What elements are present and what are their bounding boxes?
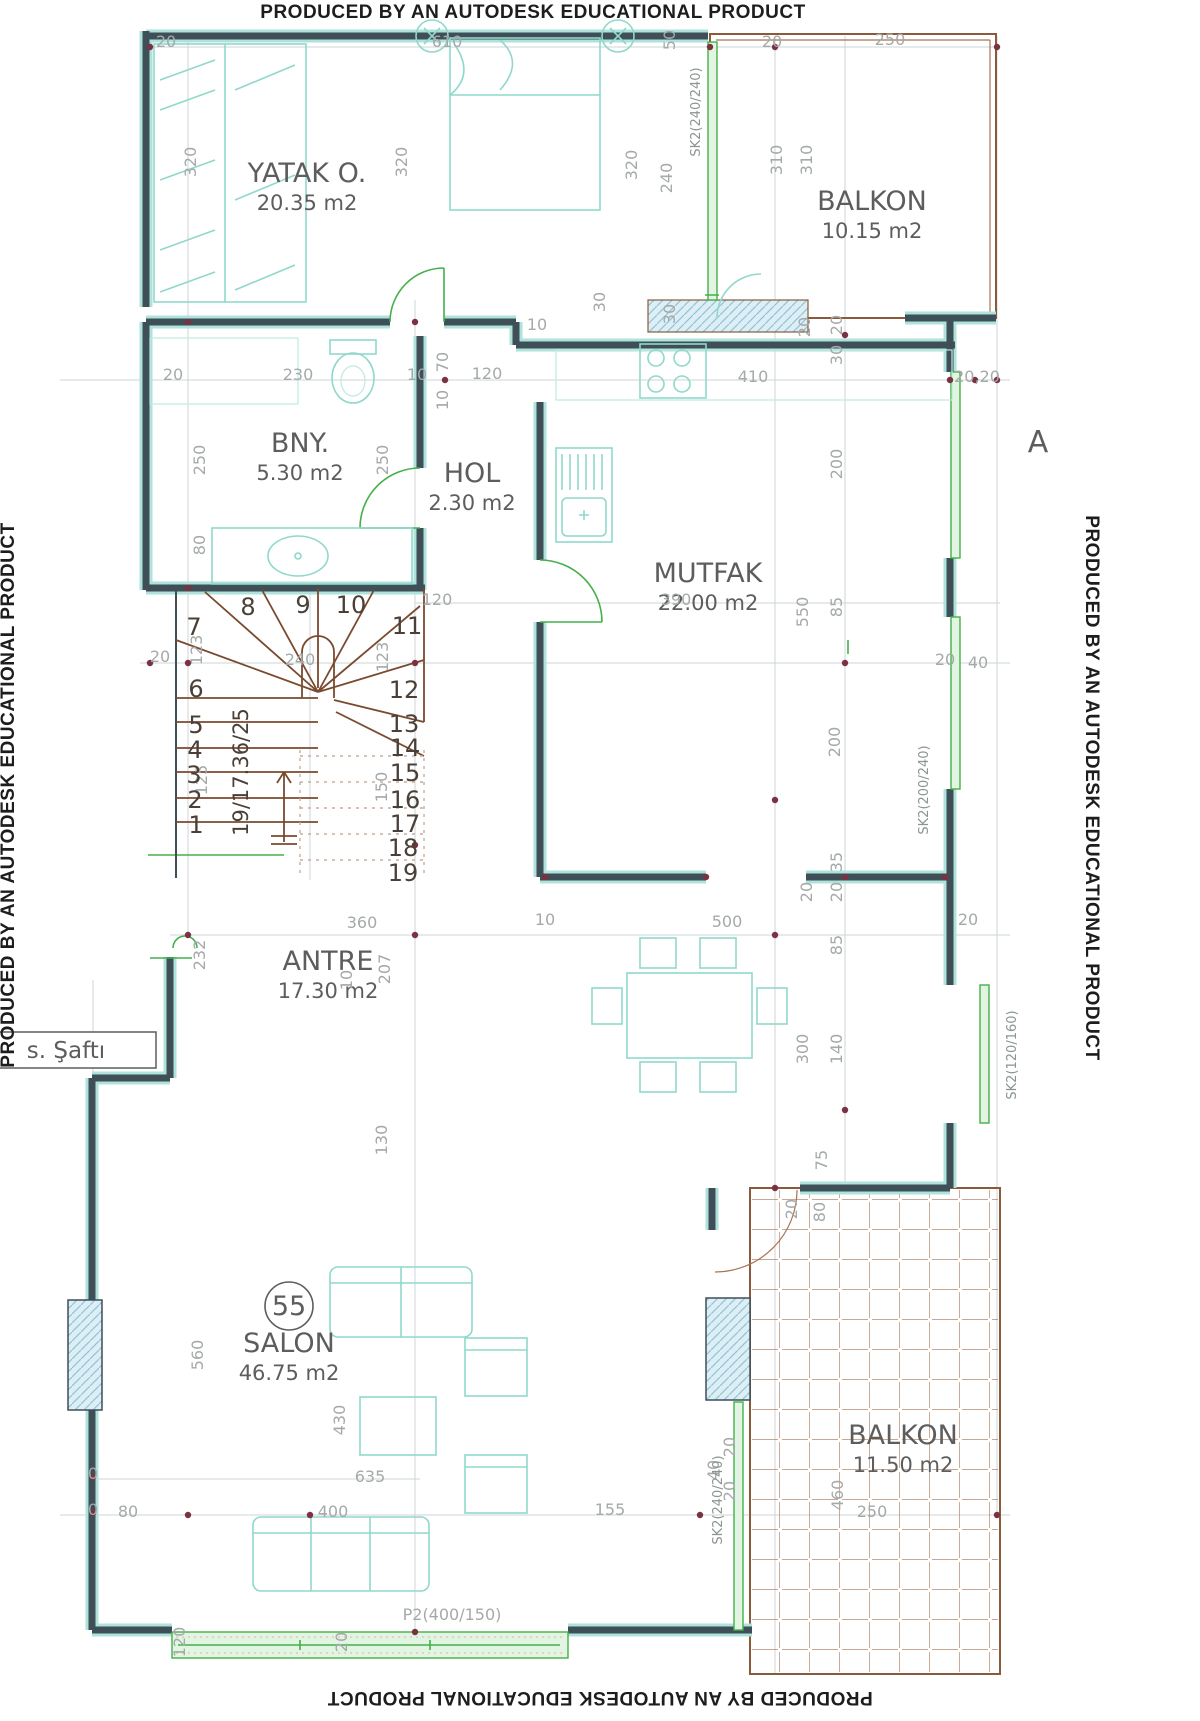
dining-set bbox=[592, 938, 787, 1092]
dimension-label: 10 bbox=[527, 315, 547, 334]
room-area-label: 17.30 m2 bbox=[278, 979, 379, 1003]
window-balcony bbox=[734, 1402, 743, 1630]
dimension-label: 0 bbox=[88, 1500, 98, 1519]
dimension-label: 80 bbox=[190, 535, 209, 555]
toilet bbox=[330, 340, 376, 403]
dimension-label: 400 bbox=[318, 1502, 349, 1521]
dimension-label: 230 bbox=[283, 365, 314, 384]
stair-number: 19 bbox=[388, 859, 419, 887]
room-name-label: MUTFAK bbox=[654, 558, 764, 589]
dimension-label: 0 bbox=[88, 1464, 98, 1483]
stair-number: 5 bbox=[188, 711, 203, 739]
stair-number: 11 bbox=[392, 612, 423, 640]
dimension-label: 310 bbox=[797, 145, 816, 176]
dimension-label: 75 bbox=[812, 1150, 831, 1170]
stair-number: 12 bbox=[389, 676, 420, 704]
dimension-label: 320 bbox=[181, 147, 200, 178]
room-name-label: ANTRE bbox=[283, 946, 374, 977]
coffee-table bbox=[360, 1397, 436, 1455]
stair-number: 9 bbox=[295, 591, 310, 619]
dimension-label: 70 bbox=[433, 352, 452, 372]
dimension-label: 360 bbox=[347, 913, 378, 932]
stair-number: 15 bbox=[390, 759, 421, 787]
window-dining bbox=[980, 985, 989, 1123]
dimension-label: 300 bbox=[793, 1034, 812, 1065]
window-kitchen-lower bbox=[951, 617, 960, 789]
section-label-a: A bbox=[1028, 425, 1049, 460]
dimension-label: 635 bbox=[355, 1467, 386, 1486]
dimension-label: 20 bbox=[958, 910, 978, 929]
banner-left: PRODUCED BY AN AUTODESK EDUCATIONAL PROD… bbox=[0, 522, 19, 1067]
stair-number: 3 bbox=[186, 761, 201, 789]
dimension-label: 50 bbox=[660, 30, 679, 50]
dimension-label: 85 bbox=[827, 597, 846, 617]
dimension-label: 207 bbox=[375, 954, 394, 985]
dimension-label: 460 bbox=[828, 1480, 847, 1511]
dimension-label: 20 bbox=[782, 1199, 801, 1219]
dimension-label: 20 bbox=[797, 882, 816, 902]
room-name-label: BNY. bbox=[271, 428, 329, 459]
dimension-label: 120 bbox=[170, 1627, 189, 1658]
banner-top: PRODUCED BY AN AUTODESK EDUCATIONAL PROD… bbox=[260, 2, 805, 23]
dimension-label: 610 bbox=[432, 32, 463, 51]
dimension-label: 80 bbox=[118, 1502, 138, 1521]
dimension-label: 30 bbox=[660, 304, 679, 324]
kitchen-sink bbox=[556, 448, 612, 542]
armchair bbox=[465, 1338, 527, 1396]
dimension-label: 10 bbox=[535, 910, 555, 929]
stair-number: 10 bbox=[336, 591, 367, 619]
room-area-label: 10.15 m2 bbox=[822, 219, 923, 243]
dimension-label: 232 bbox=[190, 940, 209, 971]
dimension-label: 200 bbox=[825, 727, 844, 758]
dimension-label: 560 bbox=[188, 1340, 207, 1371]
stair-number: 2 bbox=[187, 786, 202, 814]
dimension-label: 410 bbox=[738, 367, 769, 386]
dimension-label: 20 bbox=[720, 1437, 739, 1457]
dimension-label: 30 bbox=[827, 345, 846, 365]
dimension-label: 320 bbox=[622, 150, 641, 181]
dimension-label: 20 bbox=[156, 32, 176, 51]
stair-numbers: 1234567891011121314151617181919/17.36/25 bbox=[186, 591, 422, 887]
dimension-label: 500 bbox=[712, 912, 743, 931]
dimension-label: 10 bbox=[407, 365, 427, 384]
stair-number: 18 bbox=[388, 834, 419, 862]
sofa bbox=[253, 1517, 429, 1591]
dimension-label: 20 bbox=[935, 650, 955, 669]
column-hatch-salon bbox=[68, 1300, 102, 1410]
dimension-label: 30 bbox=[590, 292, 609, 312]
dimension-label: 40 bbox=[968, 653, 988, 672]
dimension-label: 20 bbox=[762, 32, 782, 51]
window-yatak-balkon bbox=[708, 42, 717, 300]
dimension-label: 320 bbox=[392, 147, 411, 178]
door-code-label: P2(400/150) bbox=[403, 1605, 502, 1624]
stair-number: 4 bbox=[187, 736, 202, 764]
room-area-label: 11.50 m2 bbox=[853, 1453, 954, 1477]
dimension-label: 250 bbox=[190, 445, 209, 476]
stair-number: 8 bbox=[240, 593, 255, 621]
dimension-label: 123 bbox=[373, 642, 392, 673]
dimension-label: 85 bbox=[827, 935, 846, 955]
dimension-label: 240 bbox=[657, 163, 676, 194]
window-code-label: SK2(120/160) bbox=[1005, 1010, 1020, 1099]
room-area-label: 46.75 m2 bbox=[239, 1361, 340, 1385]
dimension-label: 10 bbox=[337, 970, 356, 990]
room-name-label: HOL bbox=[444, 458, 501, 489]
stair-number: 14 bbox=[390, 734, 421, 762]
shaft-label: s. Şaftı bbox=[27, 1038, 105, 1064]
dimension-label: 130 bbox=[372, 1125, 391, 1156]
dimension-label: 430 bbox=[330, 1405, 349, 1436]
window-code-label: SK2(240/240) bbox=[689, 67, 704, 156]
dimension-label: 35 bbox=[827, 852, 846, 872]
stair-note: 19/17.36/25 bbox=[229, 708, 253, 836]
dimension-label: 550 bbox=[793, 597, 812, 628]
dimension-label: 250 bbox=[875, 30, 906, 49]
room-area-label: 20.35 m2 bbox=[257, 191, 358, 215]
dimension-label: 240 bbox=[285, 650, 316, 669]
room-name-label: YATAK O. bbox=[247, 158, 367, 189]
dimension-label: 150 bbox=[372, 772, 391, 803]
room-area-label: 2.30 m2 bbox=[428, 491, 515, 515]
banner-right: PRODUCED BY AN AUTODESK EDUCATIONAL PROD… bbox=[1081, 515, 1102, 1060]
dimension-label: 10 bbox=[433, 390, 452, 410]
dimension-label: 155 bbox=[595, 1500, 626, 1519]
stair-number: 1 bbox=[188, 811, 203, 839]
dimension-label: 310 bbox=[767, 145, 786, 176]
column-hatch-balcony bbox=[706, 1298, 750, 1400]
dimension-label: 20 bbox=[332, 1632, 351, 1652]
unit-number: 55 bbox=[272, 1291, 306, 1322]
banner-bottom: PRODUCED BY AN AUTODESK EDUCATIONAL PROD… bbox=[327, 1687, 872, 1708]
window-code-label: SK2(240/240) bbox=[711, 1455, 726, 1544]
dimension-label: 20 bbox=[150, 647, 170, 666]
room-name-label: BALKON bbox=[848, 1420, 958, 1451]
dimension-label: 80 bbox=[810, 1202, 829, 1222]
dimension-label: 250 bbox=[373, 445, 392, 476]
dimension-label: 20 bbox=[827, 882, 846, 902]
dimension-label: 200 bbox=[827, 449, 846, 480]
dimension-label: 120 bbox=[472, 364, 503, 383]
window-code-label: SK2(200/240) bbox=[917, 745, 932, 834]
dimension-label: 20,20 bbox=[954, 367, 1000, 386]
room-name-label: BALKON bbox=[817, 186, 927, 217]
stair-number: 6 bbox=[188, 675, 203, 703]
dimension-label: 20 bbox=[827, 315, 846, 335]
dimension-label: 140 bbox=[827, 1034, 846, 1065]
room-area-label: 5.30 m2 bbox=[256, 461, 343, 485]
dimension-label: 250 bbox=[857, 1502, 888, 1521]
dimension-label: 20 bbox=[163, 365, 183, 384]
floor-plan-page: 55 A s. Şaftı P2(400/150) PRODUCED BY AN… bbox=[0, 0, 1200, 1721]
dimension-label: 20 bbox=[795, 317, 814, 337]
dimension-label: 390 bbox=[661, 590, 692, 609]
stair-number: 7 bbox=[186, 613, 201, 641]
armchair bbox=[465, 1455, 527, 1513]
unit-badge: 55 bbox=[265, 1282, 313, 1330]
dimension-label: 120 bbox=[422, 590, 453, 609]
floor-plan-canvas: 55 A s. Şaftı P2(400/150) PRODUCED BY AN… bbox=[0, 0, 1200, 1721]
room-name-label: SALON bbox=[243, 1328, 335, 1359]
